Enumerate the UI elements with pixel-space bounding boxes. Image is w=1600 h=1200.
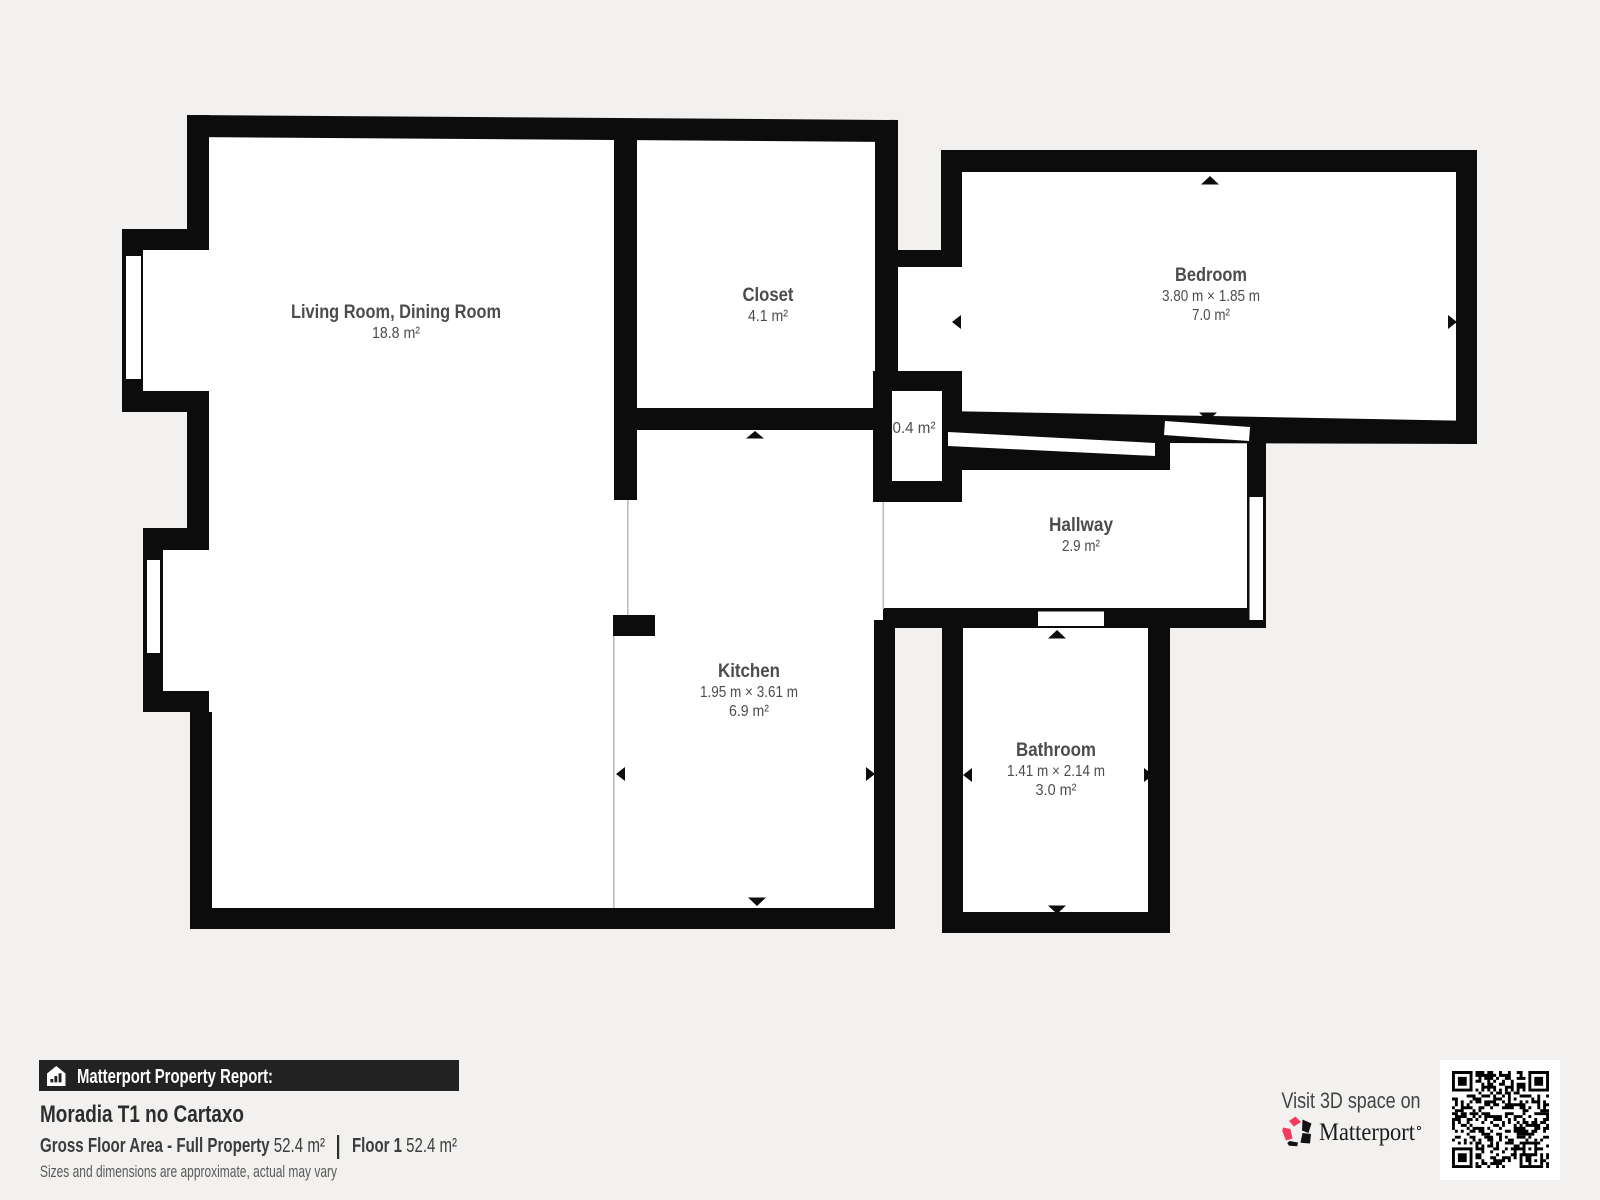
svg-text:Moradia T1 no Cartaxo: Moradia T1 no Cartaxo <box>40 1101 244 1128</box>
svg-text:Hallway: Hallway <box>1049 514 1113 536</box>
svg-text:6.9 m²: 6.9 m² <box>729 703 770 720</box>
svg-text:Matterport: Matterport <box>1319 1119 1415 1146</box>
svg-text:18.8 m²: 18.8 m² <box>372 325 421 342</box>
svg-text:Floor 1 52.4 m²: Floor 1 52.4 m² <box>352 1135 457 1157</box>
svg-text:Closet: Closet <box>743 284 794 306</box>
svg-text:Visit 3D space on: Visit 3D space on <box>1282 1088 1421 1113</box>
svg-text:Matterport Property Report:: Matterport Property Report: <box>77 1065 273 1088</box>
svg-text:3.80 m × 1.85 m: 3.80 m × 1.85 m <box>1162 288 1260 305</box>
svg-text:4.1 m²: 4.1 m² <box>748 308 789 325</box>
svg-text:Kitchen: Kitchen <box>718 660 780 682</box>
svg-text:1.41 m × 2.14 m: 1.41 m × 2.14 m <box>1007 763 1105 780</box>
svg-text:Sizes and dimensions are appro: Sizes and dimensions are approximate, ac… <box>40 1163 338 1181</box>
svg-text:Bathroom: Bathroom <box>1016 739 1096 761</box>
svg-text:7.0 m²: 7.0 m² <box>1192 307 1231 324</box>
svg-text:Bedroom: Bedroom <box>1175 264 1247 286</box>
svg-text:Gross Floor Area - Full Proper: Gross Floor Area - Full Property 52.4 m² <box>40 1135 325 1157</box>
svg-text:3.0 m²: 3.0 m² <box>1036 782 1078 799</box>
svg-text:Living Room, Dining Room: Living Room, Dining Room <box>291 301 501 323</box>
svg-text:2.9 m²: 2.9 m² <box>1062 538 1101 555</box>
svg-text:1.95 m × 3.61 m: 1.95 m × 3.61 m <box>700 684 798 701</box>
svg-text:0.4 m²: 0.4 m² <box>893 420 937 437</box>
